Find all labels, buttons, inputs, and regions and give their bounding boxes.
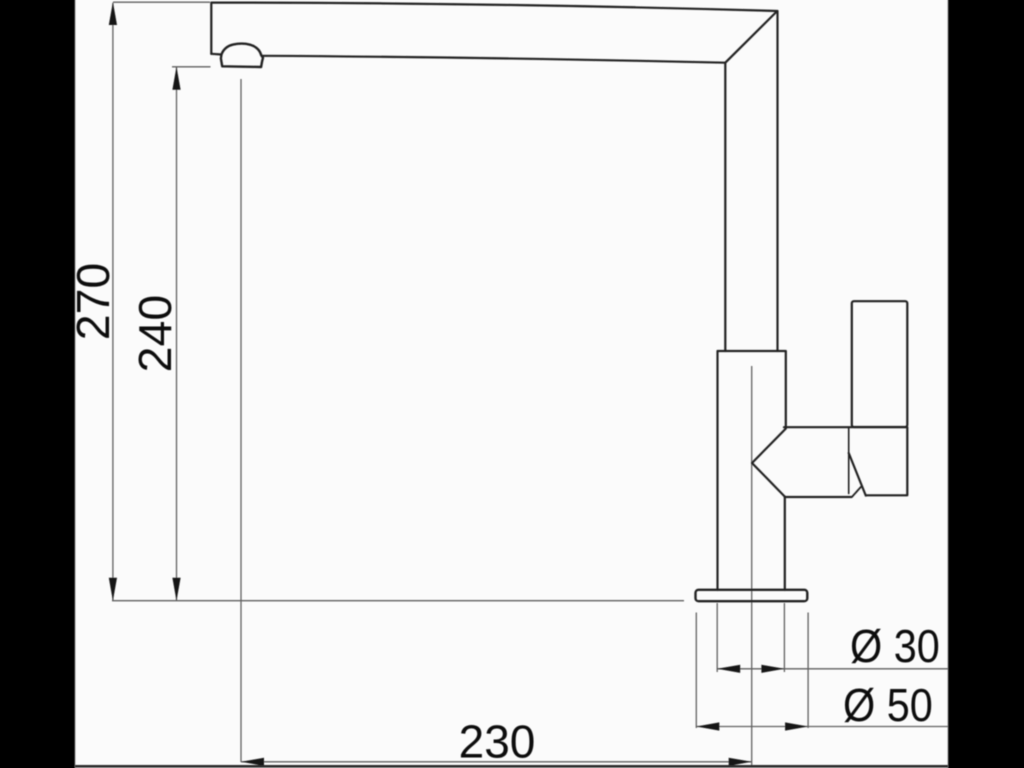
svg-text:240: 240 [129,295,181,373]
svg-text:230: 230 [459,716,536,768]
svg-text:Ø 30: Ø 30 [850,621,940,673]
svg-text:Ø 50: Ø 50 [843,680,933,732]
